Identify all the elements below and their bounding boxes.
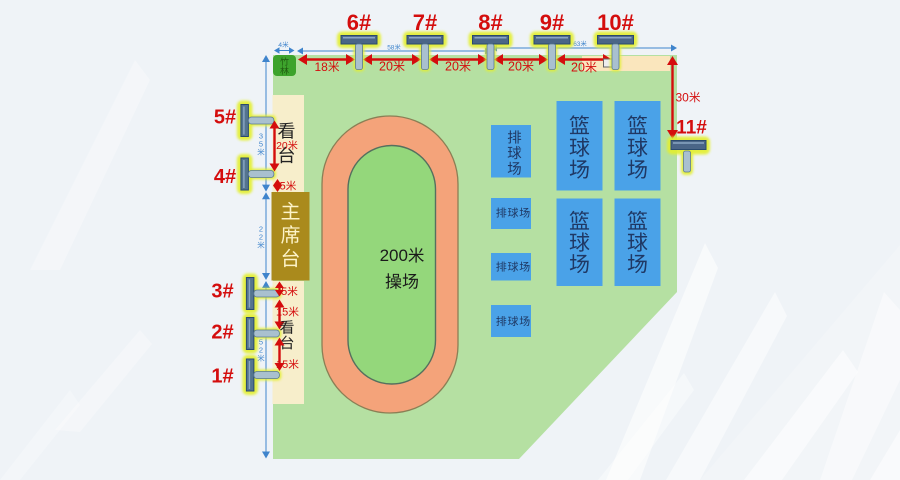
svg-text:5: 5 [280,181,286,193]
svg-text:30: 30 [676,90,690,104]
svg-text:8#: 8# [478,10,502,35]
svg-text:5: 5 [281,286,287,298]
svg-text:58: 58 [387,44,395,51]
svg-text:10#: 10# [597,10,634,35]
svg-text:2#: 2# [211,322,233,344]
svg-text:20: 20 [445,60,459,74]
svg-text:6#: 6# [347,10,371,35]
svg-text:1#: 1# [211,366,233,388]
svg-text:9#: 9# [540,10,564,35]
svg-text:20: 20 [379,60,393,74]
svg-text:11#: 11# [676,117,707,138]
svg-text:18: 18 [315,60,329,74]
svg-text:7#: 7# [413,10,437,35]
svg-text:200: 200 [380,246,408,265]
svg-text:20: 20 [571,61,585,75]
svg-text:4#: 4# [214,166,236,188]
svg-text:4: 4 [278,42,282,49]
svg-text:20: 20 [508,60,522,74]
svg-text:2: 2 [259,346,263,355]
svg-text:20: 20 [276,140,288,152]
svg-text:15: 15 [276,307,288,319]
svg-text:5: 5 [259,140,263,149]
svg-text:63: 63 [573,41,581,48]
svg-text:2: 2 [259,233,263,242]
svg-text:3#: 3# [211,281,233,303]
svg-text:5#: 5# [214,107,236,129]
svg-text:15: 15 [276,359,288,371]
